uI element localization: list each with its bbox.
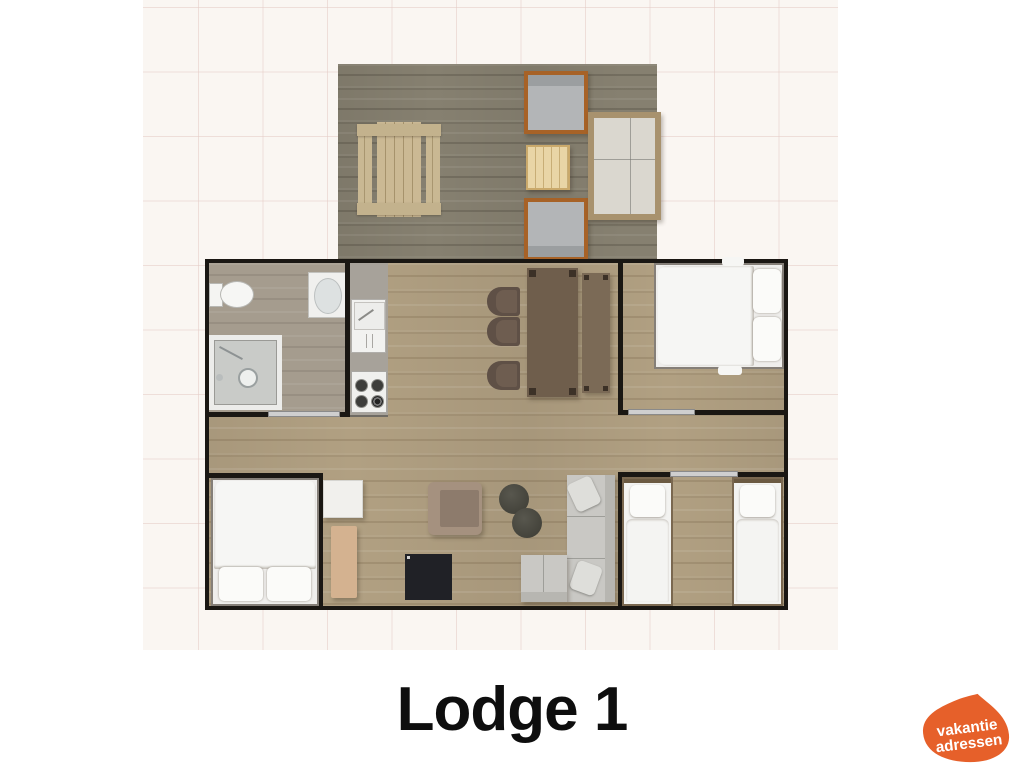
bed-runner: [722, 257, 744, 266]
duvet: [658, 266, 754, 366]
picnic-bench-left: [358, 127, 372, 212]
duvet: [626, 519, 669, 602]
bed-runner: [718, 366, 742, 375]
shower-head: [216, 374, 223, 381]
double-bed-left: [211, 478, 319, 606]
tv-or-stove: [405, 554, 452, 600]
kitchen-cabinet-handles: [366, 334, 367, 348]
page-title: Lodge 1: [0, 674, 1024, 745]
wall-bathroom-kitchen: [345, 263, 350, 417]
pillow: [753, 317, 781, 361]
kitchen-sink-basin: [354, 302, 385, 330]
kitchen-stove: [351, 371, 387, 413]
corner-sofa-horizontal: [521, 555, 567, 602]
door-threshold-bedroom-right: [628, 409, 695, 415]
stove-burner: [372, 396, 383, 407]
deck-side-table: [526, 145, 570, 190]
deck-terrace: [338, 64, 657, 259]
white-cabinet: [323, 480, 363, 518]
kitchen-sink: [351, 299, 386, 353]
picnic-bench-right: [426, 127, 440, 212]
picnic-crossbar-bottom: [357, 203, 441, 215]
pillow: [219, 567, 263, 601]
picnic-crossbar-top: [357, 124, 441, 136]
pillow: [267, 567, 311, 601]
dining-chair: [487, 287, 520, 316]
duvet: [214, 481, 316, 569]
door-threshold-bathroom: [268, 411, 340, 417]
shower-drain: [238, 368, 258, 388]
washbasin-bowl: [314, 278, 342, 314]
deck-chair-north: [524, 71, 588, 134]
lodge-floorplan: [205, 259, 788, 610]
pillow: [630, 485, 665, 517]
dining-chair: [487, 361, 520, 390]
dining-chair: [487, 317, 520, 346]
shower: [209, 335, 282, 410]
armchair-seat: [440, 490, 479, 527]
dining-bench: [582, 273, 610, 393]
picnic-table: [357, 122, 441, 217]
wooden-bench: [331, 526, 357, 598]
armchair: [428, 482, 482, 535]
shower-hose: [219, 346, 243, 360]
vakantieadressen-logo: vakantie adressen: [920, 692, 1013, 764]
dining-table: [527, 268, 578, 397]
single-bed: [732, 477, 783, 606]
sofa-pillow: [569, 559, 604, 596]
floorplan-image: Lodge 1 vakantie adressen: [0, 0, 1024, 768]
deck-chair-south: [524, 198, 588, 261]
pillow: [740, 485, 775, 517]
stove-burner: [356, 396, 367, 407]
stove-burner: [372, 380, 383, 391]
single-bed: [622, 477, 673, 606]
logo-blob: vakantie adressen: [920, 692, 1013, 764]
sofa-pillow: [566, 475, 602, 513]
pillow: [753, 269, 781, 313]
corner-sofa-vertical: [567, 475, 615, 602]
door-threshold-twin-bedroom: [670, 471, 738, 477]
deck-wicker-sofa: [588, 112, 661, 220]
duvet: [736, 519, 779, 602]
washbasin: [308, 272, 346, 318]
stove-burner: [356, 380, 367, 391]
double-bed-right: [654, 263, 784, 369]
toilet: [220, 281, 254, 308]
wall-bedroom-right-west: [618, 263, 623, 415]
pouf: [512, 508, 542, 538]
